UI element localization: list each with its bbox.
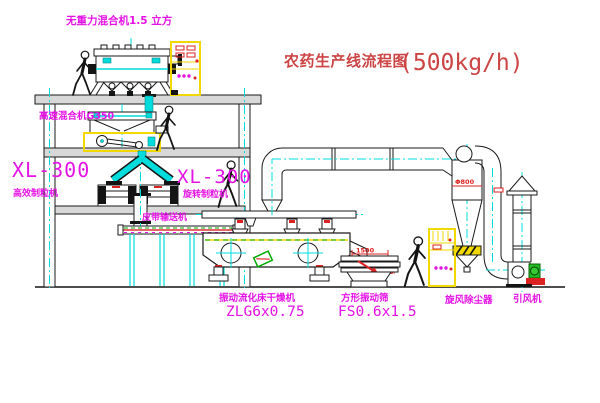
induced-draft-fan bbox=[506, 262, 545, 287]
label-belt-conveyor: 皮带输送机 bbox=[141, 211, 187, 223]
label-high-speed-mixer: 高速混合机G350 bbox=[39, 110, 115, 122]
label-dryer-name: 振动流化床干燥机 bbox=[219, 292, 296, 304]
fan-base bbox=[526, 278, 545, 285]
flow-diagram: Φ800 1500 545 bbox=[0, 0, 600, 403]
label-left-granulator-name: 高效制粒机 bbox=[13, 187, 58, 199]
cad-drawing-sheet: Φ800 1500 545 bbox=[0, 0, 600, 403]
cyclone-discharge-valve bbox=[453, 246, 481, 272]
label-sieve-name: 方形振动筛 bbox=[341, 292, 389, 304]
label-left-granulator-model: XL-300 bbox=[12, 158, 90, 182]
fluid-bed-dryer bbox=[196, 211, 364, 281]
floor-slab-mid bbox=[44, 148, 250, 157]
mixer-discharge-funnels bbox=[103, 82, 157, 96]
drawing-title: 农药生产线流程图 (500kg/h) bbox=[283, 50, 524, 76]
control-cabinet-top bbox=[171, 42, 200, 95]
control-cabinet-right bbox=[429, 229, 455, 286]
label-fan: 引风机 bbox=[513, 293, 542, 305]
label-mid-granulator-name: 旋转制粒机 bbox=[182, 188, 228, 200]
mixer-drop-pipe bbox=[145, 96, 153, 112]
title-capacity: (500kg/h) bbox=[399, 50, 524, 76]
cyclone-outlet-duct bbox=[475, 146, 545, 279]
exhaust-duct bbox=[262, 148, 463, 215]
person-icon bbox=[405, 237, 425, 286]
cyclone-diameter-dim: Φ800 bbox=[455, 178, 475, 186]
title-text: 农药生产线流程图 bbox=[283, 52, 408, 70]
label-gravity-mixer: 无重力混合机1.5 立方 bbox=[65, 14, 173, 27]
label-sieve-model: FS0.6x1.5 bbox=[338, 304, 417, 320]
label-dryer-model: ZLG6x0.75 bbox=[226, 304, 305, 320]
label-mid-granulator-model: XL-300 bbox=[177, 166, 252, 188]
svg-text:1500: 1500 bbox=[356, 247, 375, 255]
label-cyclone: 旋风除尘器 bbox=[444, 294, 493, 306]
